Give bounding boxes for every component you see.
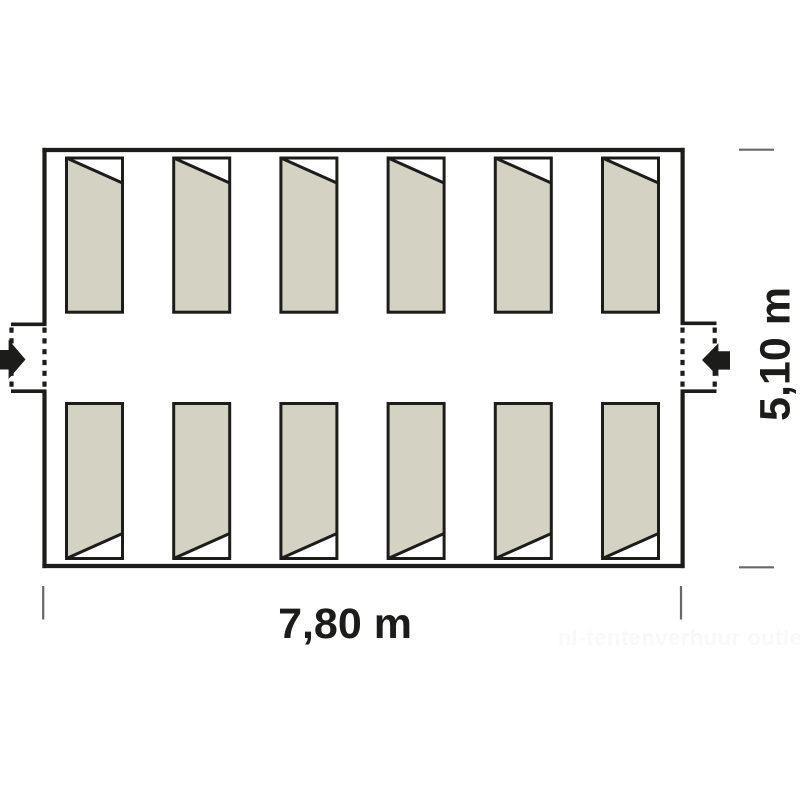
svg-text:7,80 m: 7,80 m bbox=[278, 600, 412, 648]
svg-text:nl-tentenverhuur outlet: nl-tentenverhuur outlet bbox=[558, 625, 800, 650]
svg-text:5,10 m: 5,10 m bbox=[752, 287, 800, 421]
